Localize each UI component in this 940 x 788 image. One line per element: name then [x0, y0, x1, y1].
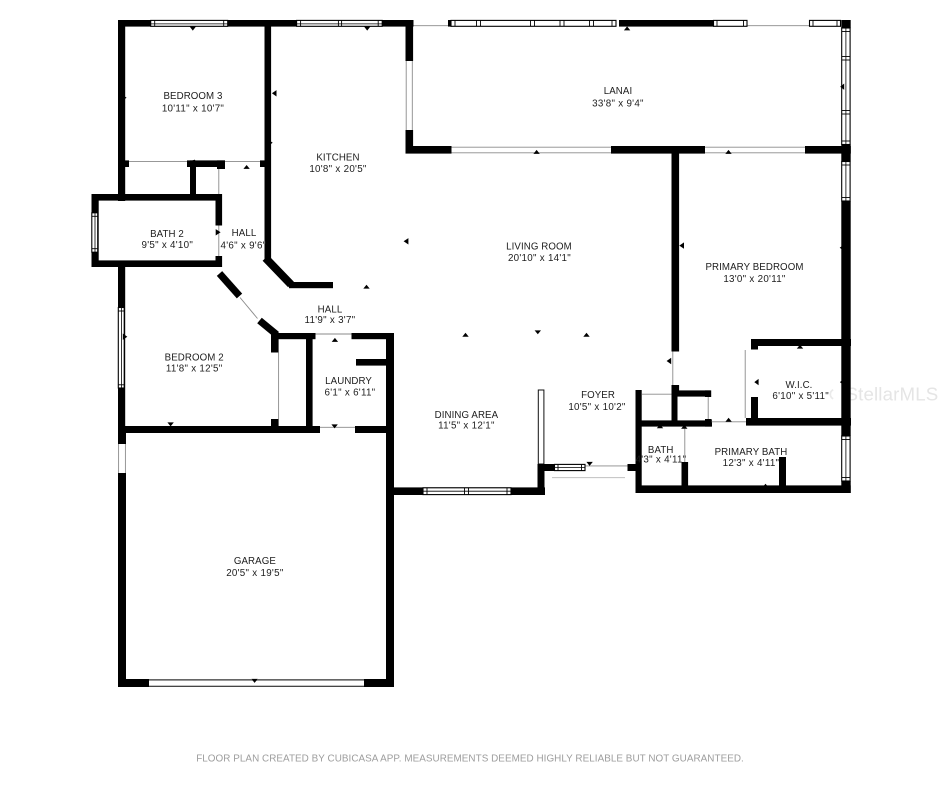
- svg-text:BATH 2: BATH 2: [150, 229, 184, 240]
- svg-text:StellarMLS: StellarMLS: [846, 384, 939, 405]
- svg-text:PRIMARY BEDROOM: PRIMARY BEDROOM: [705, 262, 803, 273]
- svg-text:20'10" x 14'1": 20'10" x 14'1": [508, 253, 571, 264]
- svg-text:11'5" x 12'1": 11'5" x 12'1": [438, 421, 495, 432]
- svg-text:LIVING ROOM: LIVING ROOM: [506, 242, 572, 253]
- svg-text:12'3" x 4'11": 12'3" x 4'11": [723, 458, 780, 469]
- svg-text:PRIMARY BATH: PRIMARY BATH: [715, 447, 788, 458]
- svg-text:HALL: HALL: [232, 228, 257, 239]
- svg-text:11'8" x 12'5": 11'8" x 12'5": [166, 364, 223, 375]
- svg-text:FLOOR PLAN CREATED BY CUBICASA: FLOOR PLAN CREATED BY CUBICASA APP. MEAS…: [196, 754, 744, 765]
- svg-text:10'11" x 10'7": 10'11" x 10'7": [162, 104, 225, 115]
- svg-text:W.I.C.: W.I.C.: [786, 380, 813, 391]
- svg-text:9'5" x 4'10": 9'5" x 4'10": [141, 240, 193, 251]
- svg-text:KITCHEN: KITCHEN: [316, 153, 359, 164]
- svg-text:BEDROOM 2: BEDROOM 2: [165, 353, 224, 364]
- svg-text:LANAI: LANAI: [604, 86, 633, 97]
- svg-text:LAUNDRY: LAUNDRY: [325, 376, 372, 387]
- svg-text:HALL: HALL: [318, 305, 343, 316]
- svg-text:DINING AREA: DINING AREA: [435, 410, 499, 421]
- svg-text:GARAGE: GARAGE: [234, 556, 276, 567]
- svg-text:BEDROOM 3: BEDROOM 3: [163, 91, 222, 102]
- svg-text:11'9" x 3'7": 11'9" x 3'7": [305, 315, 356, 326]
- svg-text:10'8" x 20'5": 10'8" x 20'5": [309, 164, 367, 175]
- svg-text:6'1" x 6'11": 6'1" x 6'11": [325, 388, 376, 399]
- svg-text:20'5" x 19'5": 20'5" x 19'5": [226, 568, 284, 579]
- svg-text:33'8" x 9'4": 33'8" x 9'4": [592, 99, 644, 110]
- svg-text:4'3" x 4'11": 4'3" x 4'11": [636, 455, 687, 466]
- svg-text:13'0" x 20'11": 13'0" x 20'11": [723, 274, 786, 285]
- svg-text:FOYER: FOYER: [581, 390, 615, 401]
- svg-text:10'5" x 10'2": 10'5" x 10'2": [568, 402, 626, 413]
- svg-text:4'6" x 9'6": 4'6" x 9'6": [221, 241, 267, 252]
- svg-text:6'10" x 5'11": 6'10" x 5'11": [772, 391, 829, 402]
